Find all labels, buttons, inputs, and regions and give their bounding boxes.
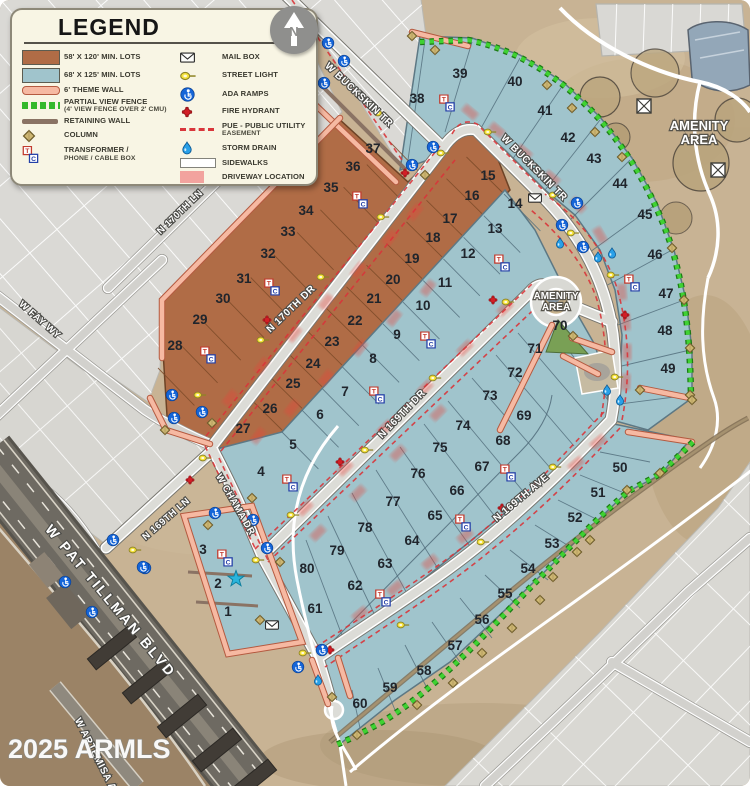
legend-item-blue-lots: 68' X 125' MIN. LOTS xyxy=(22,68,180,83)
site-plan-image: T C xyxy=(0,0,750,786)
lot-number: 22 xyxy=(347,313,362,328)
legend-divider xyxy=(24,42,304,44)
lot-number: 2 xyxy=(214,576,222,591)
lot-number: 74 xyxy=(455,418,471,433)
ada-ramp-icon xyxy=(406,159,418,171)
lot-number: 66 xyxy=(449,483,465,498)
mail-box-icon xyxy=(529,194,542,202)
legend-item-column: COLUMN xyxy=(22,129,180,143)
lot-number: 57 xyxy=(447,638,462,653)
driveway-icon xyxy=(180,171,222,183)
lot-number: 65 xyxy=(427,508,443,523)
lot-number: 33 xyxy=(280,224,296,239)
lot-number: 36 xyxy=(345,159,361,174)
lot-number: 67 xyxy=(474,459,489,474)
column-icon xyxy=(22,129,64,143)
lot-number: 14 xyxy=(507,196,523,211)
lot-number: 52 xyxy=(567,510,582,525)
lot-number: 49 xyxy=(660,361,675,376)
lot-number: 54 xyxy=(520,561,536,576)
lot-number: 28 xyxy=(167,338,183,353)
lot-number: 19 xyxy=(404,251,419,266)
lot-number: 68 xyxy=(495,433,511,448)
lot-number: 40 xyxy=(507,74,522,89)
ada-ramp-icon xyxy=(86,606,98,618)
lot-number: 23 xyxy=(324,334,340,349)
lot-number: 8 xyxy=(369,351,377,366)
sidewalks-icon xyxy=(180,158,222,168)
ada-ramp-icon xyxy=(292,661,304,673)
lot-number: 18 xyxy=(425,230,441,245)
lot-number: 47 xyxy=(658,286,673,301)
ada-ramp-icon xyxy=(180,87,222,102)
lot-number: 25 xyxy=(285,376,301,391)
amenity-area-label: AMENITY xyxy=(670,118,729,133)
lot-number: 55 xyxy=(497,586,513,601)
lot-number: 39 xyxy=(452,66,467,81)
amenity-area-label: AREA xyxy=(681,132,718,147)
lot-number: 50 xyxy=(612,460,627,475)
retaining-wall-icon xyxy=(22,119,64,124)
lot-number: 12 xyxy=(460,246,475,261)
lot-number: 44 xyxy=(612,176,628,191)
north-arrow: N xyxy=(270,6,318,54)
pue-dash-icon xyxy=(180,128,222,131)
blue-lot-swatch xyxy=(22,68,64,83)
amenity-area-label: AREA xyxy=(542,302,570,313)
legend-item-view-fence: PARTIAL VIEW FENCE(4' VIEW FENCE OVER 2'… xyxy=(22,98,180,115)
lot-number: 41 xyxy=(537,103,553,118)
legend-item-brown-lots: 58' X 120' MIN. LOTS xyxy=(22,50,180,65)
lot-number: 56 xyxy=(474,612,490,627)
lot-number: 38 xyxy=(409,91,425,106)
lot-number: 11 xyxy=(438,275,453,290)
lot-number: 9 xyxy=(393,327,401,342)
lot-number: 30 xyxy=(215,291,230,306)
mail-box-icon xyxy=(266,621,279,629)
ada-ramp-icon xyxy=(556,219,568,231)
ada-ramp-icon xyxy=(427,141,439,153)
lot-number: 71 xyxy=(527,341,543,356)
ada-ramp-icon xyxy=(166,389,178,401)
lot-number: 70 xyxy=(552,318,567,333)
lot-number: 32 xyxy=(260,246,275,261)
lot-number: 60 xyxy=(352,696,367,711)
lot-number: 53 xyxy=(544,536,560,551)
lot-number: 29 xyxy=(192,312,207,327)
lot-number: 5 xyxy=(289,437,297,452)
lot-number: 42 xyxy=(560,130,575,145)
lot-number: 17 xyxy=(442,211,457,226)
lot-number: 63 xyxy=(377,556,393,571)
ada-ramp-icon xyxy=(196,406,208,418)
lot-number: 76 xyxy=(410,466,426,481)
ada-ramp-icon xyxy=(168,412,180,424)
ada-ramp-icon xyxy=(577,241,589,253)
lot-number: 4 xyxy=(257,464,265,479)
lot-number: 75 xyxy=(432,440,448,455)
lot-number: 31 xyxy=(236,271,252,286)
storm-drain-icon xyxy=(180,141,222,155)
ada-ramp-icon xyxy=(571,197,583,209)
lot-number: 80 xyxy=(299,561,314,576)
lot-number: 3 xyxy=(199,542,207,557)
transformer-box-icon xyxy=(22,146,64,163)
lot-number: 21 xyxy=(366,291,382,306)
mail-box-icon xyxy=(180,50,222,65)
lot-number: 15 xyxy=(480,168,496,183)
lot-number: 27 xyxy=(235,421,250,436)
lot-number: 46 xyxy=(647,247,663,262)
legend-item-transformer: TRANSFORMER /PHONE / CABLE BOX xyxy=(22,146,180,163)
legend-item-theme-wall: 6' THEME WALL xyxy=(22,86,180,95)
lot-number: 48 xyxy=(657,323,673,338)
legend-item-storm-drain: STORM DRAIN xyxy=(180,141,308,155)
armls-watermark: 2025 ARMLS xyxy=(8,734,171,764)
lot-number: 6 xyxy=(316,407,324,422)
lot-number: 64 xyxy=(404,533,420,548)
brown-lot-swatch xyxy=(22,50,64,65)
ada-ramp-icon xyxy=(338,55,350,67)
lot-number: 62 xyxy=(347,578,362,593)
ada-ramp-icon xyxy=(107,534,119,546)
lot-number: 77 xyxy=(385,494,400,509)
lot-number: 69 xyxy=(516,408,531,423)
amenity-area-label: AMENITY xyxy=(534,291,579,302)
legend-item-retaining-wall: RETAINING WALL xyxy=(22,117,180,126)
lot-number: 16 xyxy=(464,188,480,203)
lot-number: 72 xyxy=(507,365,522,380)
legend-item-pue: PUE - PUBLIC UTILITYEASEMENT xyxy=(180,122,308,139)
ada-ramp-icon xyxy=(322,37,334,49)
lot-number: 59 xyxy=(382,680,397,695)
lot-number: 13 xyxy=(487,221,503,236)
lot-number: 35 xyxy=(323,180,339,195)
lot-number: 78 xyxy=(357,520,373,535)
north-label: N xyxy=(289,24,298,39)
lot-number: 34 xyxy=(298,203,314,218)
ada-ramp-icon xyxy=(316,644,328,656)
lot-number: 37 xyxy=(365,141,380,156)
ada-ramp-icon xyxy=(261,542,273,554)
lot-number: 1 xyxy=(224,604,232,619)
lot-number: 10 xyxy=(415,298,430,313)
lot-number: 51 xyxy=(590,485,606,500)
legend-item-fire-hydrant: FIRE HYDRANT xyxy=(180,105,308,119)
lot-number: 73 xyxy=(482,388,498,403)
lot-number: 58 xyxy=(416,663,432,678)
ada-ramp-icon xyxy=(59,576,71,588)
lot-number: 79 xyxy=(329,543,344,558)
legend-item-sidewalks: SIDEWALKS xyxy=(180,158,308,168)
theme-wall-icon xyxy=(22,86,64,95)
ada-ramp-icon xyxy=(209,507,221,519)
street-light-icon xyxy=(180,68,222,84)
ada-ramp-icon xyxy=(318,77,330,89)
lot-number: 43 xyxy=(586,151,602,166)
lot-number: 61 xyxy=(307,601,323,616)
legend-item-driveway: DRIVEWAY LOCATION xyxy=(180,171,308,183)
ada-ramp-icon xyxy=(137,561,149,573)
view-fence-icon xyxy=(22,102,64,109)
lot-number: 26 xyxy=(262,401,278,416)
lot-number: 7 xyxy=(341,384,349,399)
fire-hydrant-icon xyxy=(180,105,222,119)
legend-item-ada-ramps: ADA RAMPS xyxy=(180,87,308,102)
lot-number: 20 xyxy=(385,272,400,287)
lot-number: 24 xyxy=(305,356,321,371)
lot-number: 45 xyxy=(637,207,653,222)
legend-item-street-light: STREET LIGHT xyxy=(180,68,308,84)
